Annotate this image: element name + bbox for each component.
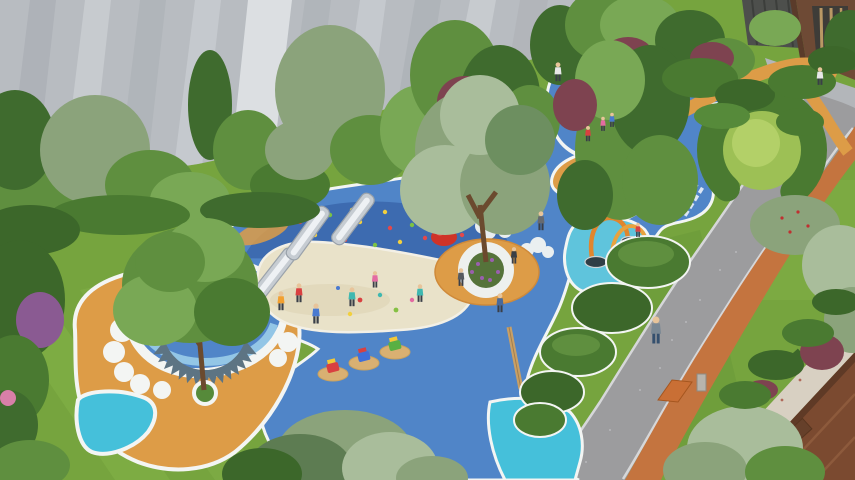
water-basin	[585, 257, 607, 268]
pink-flower-bush	[0, 390, 16, 406]
rendering-canvas	[0, 0, 855, 480]
playground-rendering	[0, 0, 855, 480]
stone-bollard	[697, 374, 706, 391]
